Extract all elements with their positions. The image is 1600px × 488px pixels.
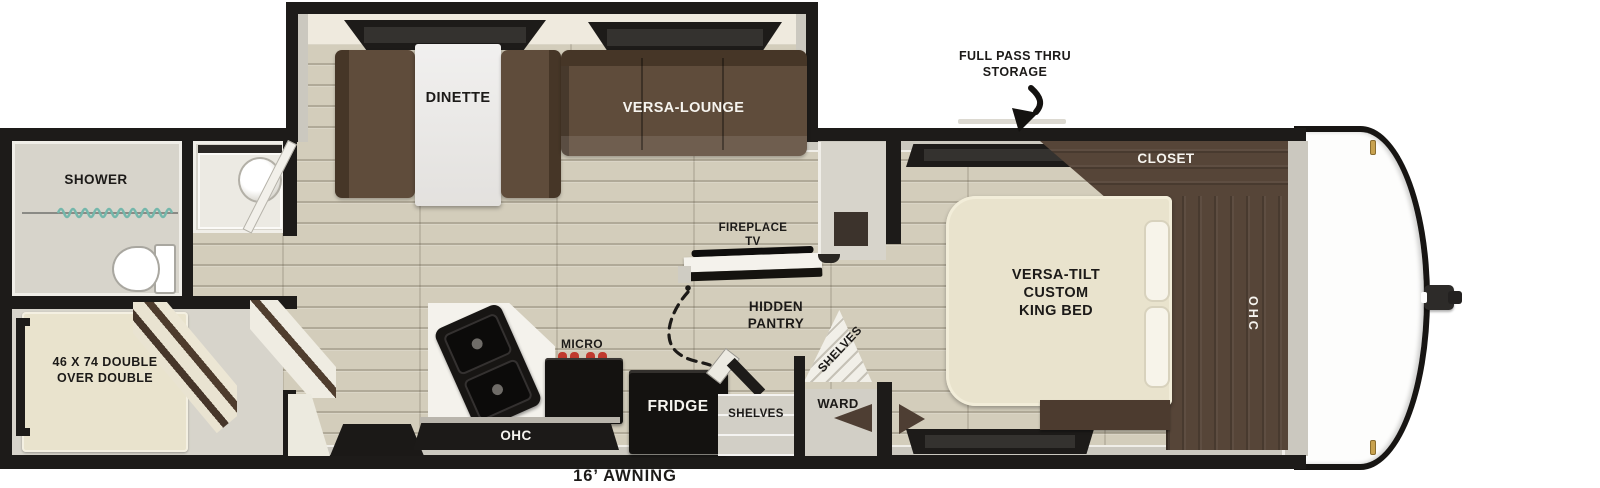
- ohc-kitchen-label: OHC: [466, 428, 566, 444]
- hitch-latch: [1448, 291, 1462, 304]
- dinette-bench-right: [501, 50, 561, 198]
- shelves-ward-wall: [794, 356, 805, 456]
- bedroom-window-bottom: [906, 429, 1094, 454]
- slide-out-wall-left: [298, 14, 308, 142]
- ward-bedroom-wall: [877, 382, 892, 458]
- king-bed-label: VERSA-TILT CUSTOM KING BED: [960, 266, 1152, 320]
- entry-step: [330, 424, 424, 456]
- counter-edge: [420, 417, 620, 423]
- sink-counter-edge: [198, 145, 282, 153]
- top-wall-right: [804, 128, 1306, 141]
- fireplace-leg: [678, 266, 691, 283]
- cap-clip-top: [1370, 140, 1376, 155]
- fridge-label: FRIDGE: [631, 398, 725, 417]
- entry-angled-wall: [250, 300, 336, 398]
- window-pane: [925, 435, 1075, 449]
- top-wall-left: [0, 128, 298, 141]
- storage-label: FULL PASS THRU STORAGE: [915, 48, 1115, 80]
- shelves-bottom-label: SHELVES: [718, 407, 794, 421]
- rv-floorplan: FULL PASS THRU STORAGE 16’ AWNING DINETT…: [0, 0, 1600, 488]
- awning-label: 16’ AWNING: [535, 466, 715, 486]
- range-stove: [545, 358, 623, 424]
- window-pane: [607, 29, 762, 46]
- hidden-pantry-label: HIDDEN PANTRY: [726, 299, 826, 332]
- shower-label: SHOWER: [40, 172, 152, 188]
- toilet-bowl: [112, 246, 160, 292]
- ward-label: WARD: [806, 396, 870, 412]
- micro-label: MICRO: [550, 337, 614, 352]
- hitch-gap: [1421, 292, 1427, 303]
- bed-foot-cabinet: [1040, 400, 1170, 430]
- ohc-bedroom-label: OHC: [1238, 282, 1260, 346]
- fireplace-tv-label: FIREPLACE TV: [712, 221, 794, 249]
- bunk-window-frame: [16, 318, 30, 436]
- cap-clip-bottom: [1370, 440, 1376, 455]
- window-pane: [924, 149, 1071, 161]
- front-cap: [1294, 126, 1430, 470]
- fireplace-tv-unit: [683, 244, 824, 287]
- shelves-closet: [718, 394, 794, 456]
- bath-divider-wall: [182, 128, 193, 309]
- storage-arrow-curve: [1031, 88, 1040, 112]
- ohc-cabinet-bedroom: [1166, 196, 1288, 450]
- dinette-table: [415, 44, 501, 206]
- bunk-bed-label: 46 X 74 DOUBLE OVER DOUBLE: [30, 355, 180, 386]
- pass-thru-seam: [958, 119, 1066, 124]
- window-pane: [364, 27, 526, 43]
- nook-tv: [834, 212, 868, 246]
- bedroom-divider-wall: [886, 140, 901, 244]
- dinette-bench-left: [335, 50, 415, 198]
- closet-label: CLOSET: [1110, 151, 1222, 167]
- dinette-label: DINETTE: [415, 90, 501, 108]
- versa-lounge-label: VERSA-LOUNGE: [576, 100, 791, 118]
- entry-angled-wall-clip: [250, 300, 336, 398]
